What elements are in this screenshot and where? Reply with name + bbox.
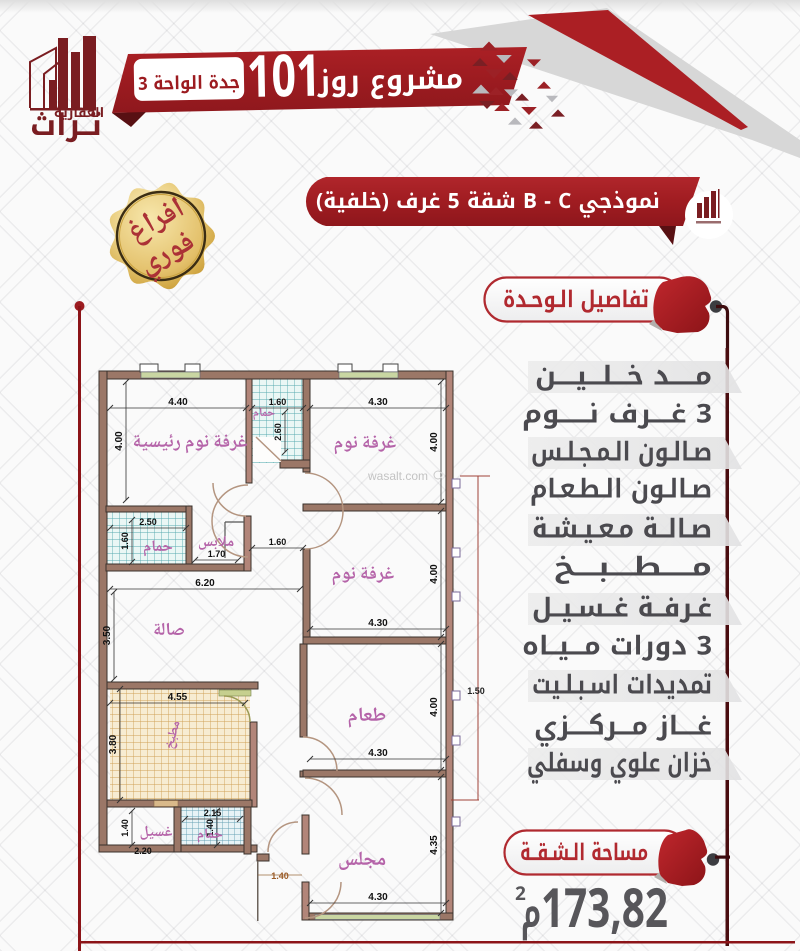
svg-text:4.40: 4.40 [168, 397, 188, 408]
svg-text:4.35: 4.35 [429, 835, 440, 855]
svg-text:4.30: 4.30 [368, 748, 388, 759]
svg-text:4.00: 4.00 [429, 697, 440, 717]
svg-text:2.60: 2.60 [273, 423, 283, 441]
svg-text:1.40: 1.40 [120, 819, 130, 837]
svg-text:1.40: 1.40 [271, 871, 289, 881]
svg-text:1.50: 1.50 [467, 686, 485, 696]
svg-text:4.00: 4.00 [114, 431, 125, 451]
svg-text:1.60: 1.60 [269, 397, 287, 407]
svg-text:2.50: 2.50 [139, 517, 157, 527]
svg-text:2.20: 2.20 [134, 846, 152, 856]
svg-text:wasalt.com: wasalt.com [367, 469, 428, 483]
svg-text:6.20: 6.20 [195, 578, 215, 589]
svg-text:4.55: 4.55 [168, 692, 188, 703]
svg-text:4.30: 4.30 [368, 397, 388, 408]
svg-text:1.70: 1.70 [208, 549, 226, 559]
svg-text:4.30: 4.30 [368, 618, 388, 629]
svg-text:1.60: 1.60 [269, 537, 287, 547]
svg-text:3.50: 3.50 [102, 625, 113, 645]
svg-text:3.80: 3.80 [108, 734, 119, 754]
svg-text:4.00: 4.00 [429, 564, 440, 584]
svg-text:4.00: 4.00 [429, 432, 440, 452]
svg-text:4.30: 4.30 [368, 892, 388, 903]
svg-text:1.60: 1.60 [120, 532, 130, 550]
